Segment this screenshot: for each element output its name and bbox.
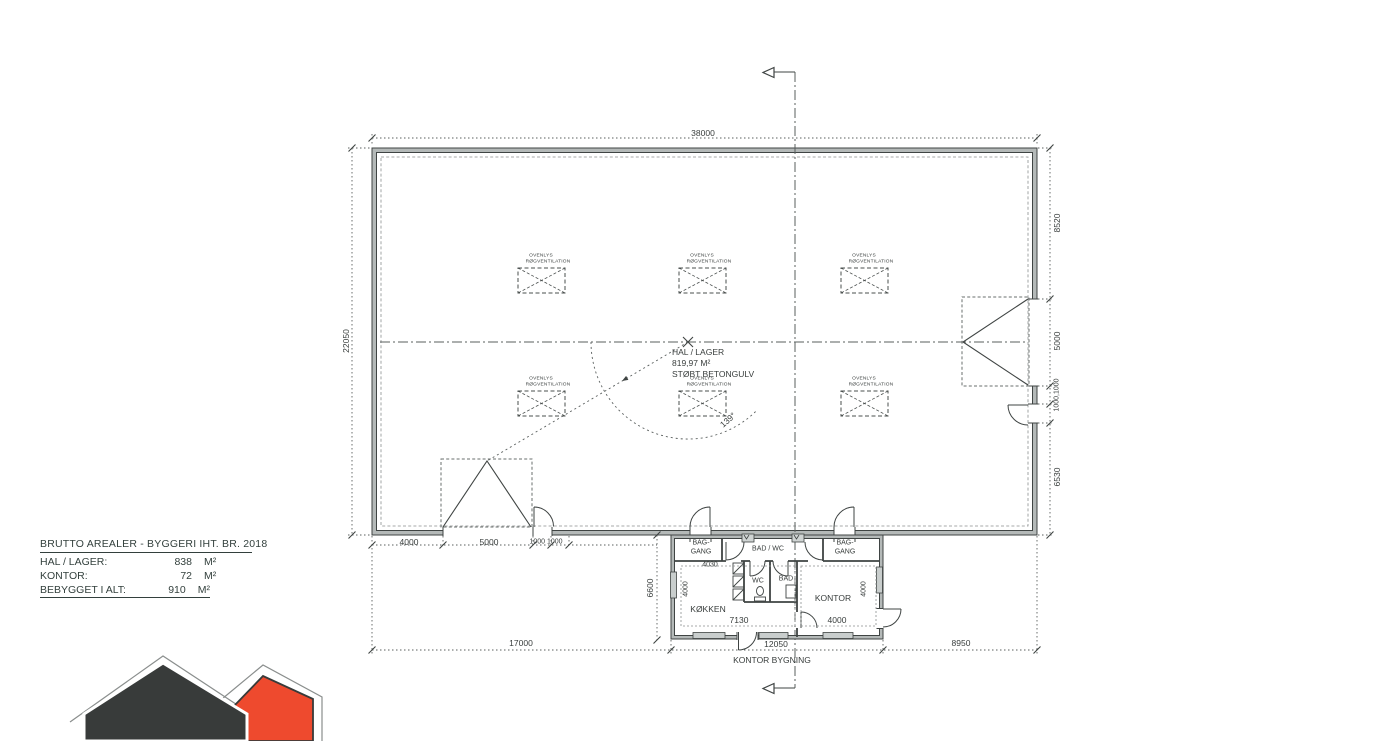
dim-bottom-seg3: 1000 1000: [529, 539, 562, 546]
dim-kontor-depth: 4000: [861, 581, 868, 597]
table-row: HAL / LAGER: 838 M²: [40, 555, 252, 569]
area-row-unit: M²: [204, 570, 216, 582]
area-row-value: 910: [153, 584, 186, 596]
room-kontor: KONTOR: [815, 594, 851, 603]
skylight-label: RØGVENTILATION: [687, 384, 732, 389]
dim-total-right: 8950: [952, 639, 971, 648]
dim-office-depth: 6600: [646, 579, 655, 598]
dim-right-gate: 5000: [1053, 332, 1062, 351]
hall-doors: [534, 405, 1028, 527]
dimension-lines: [348, 134, 1054, 654]
gate-left: [441, 459, 532, 527]
dim-left-height: 22050: [342, 329, 351, 353]
dim-right-bottom: 6530: [1053, 468, 1062, 487]
area-row-label: KONTOR:: [40, 570, 158, 582]
dim-total-left: 17000: [509, 639, 533, 648]
room-bad: BAD: [779, 576, 793, 583]
area-table: BRUTTO AREALER - BYGGERI IHT. BR. 2018 H…: [40, 538, 252, 598]
dim-kokken-width: 7130: [730, 616, 749, 625]
gate-right: [962, 297, 1029, 386]
hall-area-label: 819,97 M²: [672, 359, 710, 368]
skylight-label: RØGVENTILATION: [849, 261, 894, 266]
hall-name-label: HAL / LAGER: [672, 348, 724, 357]
dim-kokken-depth: 4000: [683, 581, 690, 597]
area-row-label: BEBYGGET I ALT:: [40, 584, 153, 596]
dim-bottom-seg2: 5000: [480, 538, 499, 547]
dim-top-width: 38000: [691, 129, 715, 138]
area-row-value: 72: [158, 570, 192, 582]
room-kokken: KØKKEN: [690, 605, 725, 614]
table-row: KONTOR: 72 M²: [40, 569, 252, 583]
area-table-title: BRUTTO AREALER - BYGGERI IHT. BR. 2018: [40, 538, 252, 553]
skylight-label: RØGVENTILATION: [687, 261, 732, 266]
toilet-icon: [757, 587, 764, 596]
dim-right-doors: 1000,1000: [1054, 378, 1061, 411]
room-bag-gang-left: GANG: [691, 549, 712, 556]
table-row: BEBYGGET I ALT: 910 M²: [40, 583, 210, 598]
section-arrow-top-icon: [763, 68, 774, 78]
dim-kontor-width: 4000: [828, 616, 847, 625]
center-line: [380, 337, 1028, 347]
area-row-unit: M²: [204, 556, 216, 568]
office-caption: KONTOR BYGNING: [733, 656, 811, 665]
room-bag-gang-right: BAG-: [836, 540, 853, 547]
room-bad-wc: BAD / WC: [752, 546, 784, 553]
area-row-label: HAL / LAGER:: [40, 556, 158, 568]
area-row-unit: M²: [198, 584, 210, 596]
skylight-label: RØGVENTILATION: [526, 384, 571, 389]
angle-annotation: [487, 342, 757, 461]
dim-bottom-seg1: 4000: [400, 538, 419, 547]
area-row-value: 838: [158, 556, 192, 568]
floorplan-canvas: 38000 22050 8520 5000 1000,1000 6530 400…: [0, 0, 1400, 741]
dimension-ticks: [349, 135, 1054, 654]
room-bag-gang-right: GANG: [835, 549, 856, 556]
section-arrow-bottom-icon: [763, 684, 774, 694]
dim-office-width: 12050: [764, 640, 788, 649]
logo-dark-house-icon: [84, 663, 247, 741]
company-logo: [70, 656, 322, 741]
skylight-label: RØGVENTILATION: [526, 261, 571, 266]
room-wc: WC: [752, 578, 764, 585]
section-line: [763, 68, 795, 694]
dim-entry-width: 4030: [702, 562, 718, 569]
room-bag-gang-left: BAG-: [692, 540, 709, 547]
skylight-label: RØGVENTILATION: [849, 384, 894, 389]
dim-right-top: 8520: [1053, 214, 1062, 233]
